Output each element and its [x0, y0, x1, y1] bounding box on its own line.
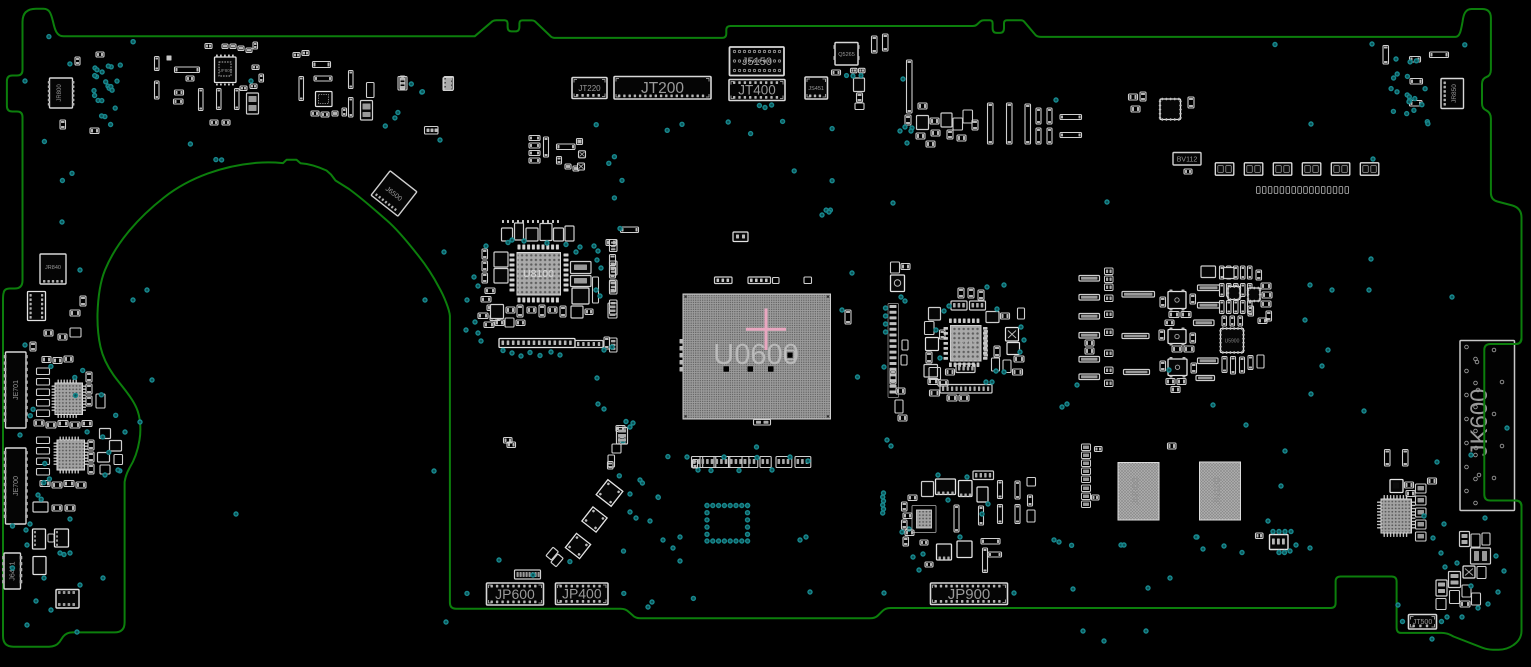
svg-text:U0600: U0600	[713, 339, 798, 371]
svg-text:BV112: BV112	[1177, 157, 1198, 164]
svg-text:JT400: JT400	[738, 83, 776, 98]
svg-text:U7700: U7700	[956, 341, 977, 348]
svg-text:JN100: JN100	[1212, 477, 1223, 504]
svg-text:JP400: JP400	[562, 586, 602, 602]
svg-text:U8100: U8100	[523, 268, 554, 280]
svg-text:J6401: J6401	[9, 561, 16, 580]
svg-text:Q5265: Q5265	[838, 52, 855, 58]
svg-text:JR800: JR800	[57, 84, 63, 102]
svg-text:U5900: U5900	[1225, 339, 1240, 345]
svg-text:JT220: JT220	[578, 84, 601, 93]
svg-text:JR850: JR850	[1451, 84, 1458, 103]
svg-text:JN000: JN000	[1131, 478, 1142, 505]
svg-text:JT500: JT500	[1413, 619, 1433, 626]
svg-text:JP900: JP900	[948, 586, 991, 603]
svg-text:JE700: JE700	[13, 476, 20, 496]
svg-text:JK600: JK600	[1466, 388, 1493, 456]
svg-text:JT200: JT200	[641, 80, 684, 97]
svg-text:JR840: JR840	[45, 265, 61, 271]
svg-text:UF800: UF800	[219, 68, 233, 73]
svg-text:JP600: JP600	[495, 586, 535, 602]
svg-text:J5150: J5150	[742, 56, 772, 68]
svg-text:JS451: JS451	[808, 86, 824, 92]
svg-text:JE701: JE701	[13, 380, 20, 400]
